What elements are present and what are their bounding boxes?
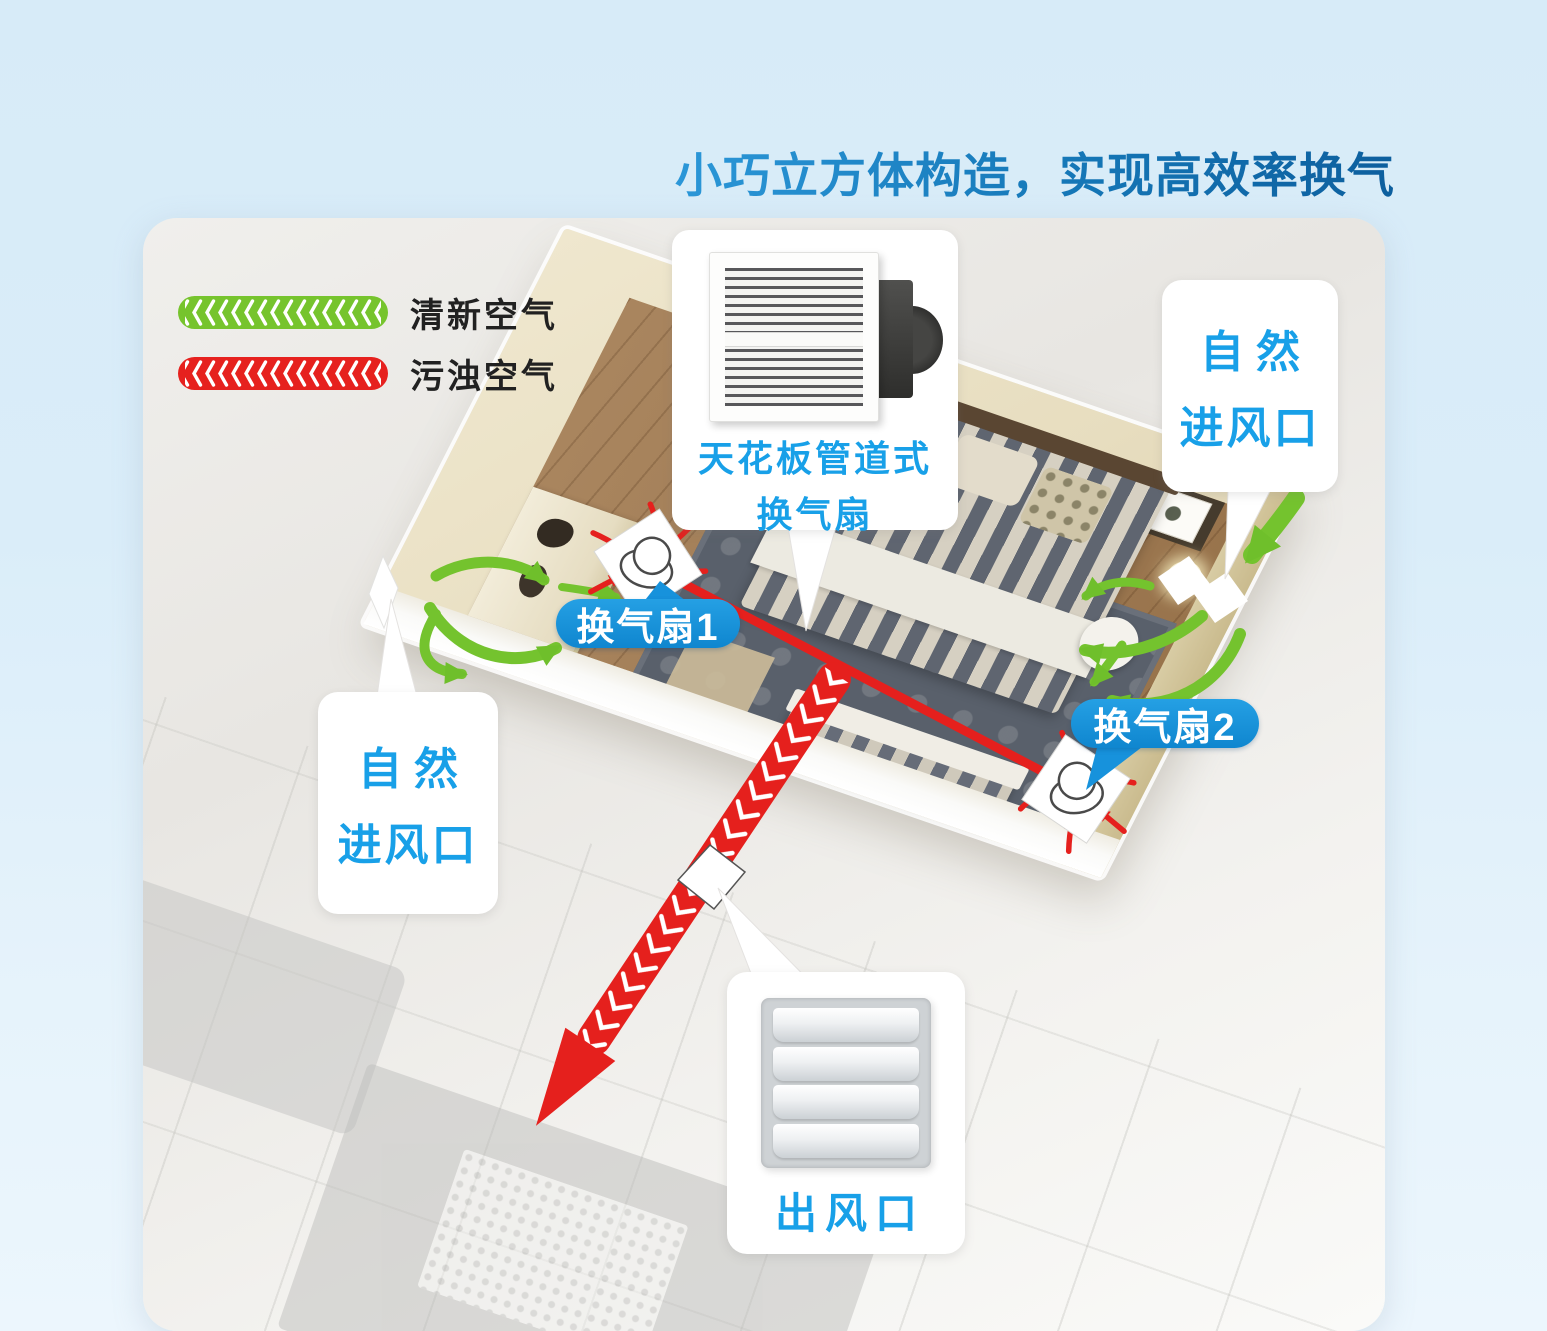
wardrobe-shadow bbox=[513, 561, 553, 600]
louver-vent-product-image bbox=[761, 998, 931, 1168]
fan2-label-pill: 换气扇2 bbox=[1071, 699, 1259, 748]
callout-natural-inlet-right: 自然 进风口 bbox=[1162, 280, 1338, 492]
louver-slat-icon bbox=[773, 1008, 919, 1042]
louver-slat-icon bbox=[773, 1124, 919, 1158]
inlet-left-label-line2: 进风口 bbox=[338, 809, 479, 873]
legend-fresh-air: 清新空气 bbox=[178, 288, 558, 337]
cushion bbox=[1018, 466, 1115, 545]
legend-dirty-label: 污浊空气 bbox=[410, 349, 558, 398]
fan-grille-band bbox=[725, 332, 863, 347]
dirty-air-arrow-icon bbox=[178, 357, 388, 390]
louver-slat-icon bbox=[773, 1085, 919, 1119]
infographic-canvas: 小巧立方体构造，实现高效率换气 清新空气 污浊空气 天花板管道式 换气扇 自然 bbox=[0, 0, 1547, 1331]
table-panel bbox=[417, 1149, 689, 1331]
legend-dirty-air: 污浊空气 bbox=[178, 349, 558, 398]
ceiling-fan-label-line1: 天花板管道式 bbox=[698, 430, 932, 482]
inlet-right-label-line1: 自然 bbox=[1188, 316, 1312, 380]
fresh-air-arrow-icon bbox=[178, 296, 388, 329]
wardrobe-shadow bbox=[532, 514, 578, 552]
page-title: 小巧立方体构造，实现高效率换气 bbox=[675, 137, 1395, 206]
inlet-left-label-line1: 自然 bbox=[346, 733, 470, 797]
fan1-label-pill: 换气扇1 bbox=[556, 599, 740, 648]
ceiling-fan-product-image bbox=[691, 250, 939, 428]
louver-slat-icon bbox=[773, 1047, 919, 1081]
callout-natural-inlet-left: 自然 进风口 bbox=[318, 692, 498, 914]
legend-fresh-label: 清新空气 bbox=[410, 288, 558, 337]
callout-ceiling-fan: 天花板管道式 换气扇 bbox=[672, 230, 958, 530]
outlet-label: 出风口 bbox=[767, 1180, 925, 1241]
ceiling-fan-label-line2: 换气扇 bbox=[756, 486, 873, 538]
callout-outlet: 出风口 bbox=[727, 972, 965, 1254]
fan-grille-icon bbox=[709, 252, 879, 422]
inlet-right-label-line2: 进风口 bbox=[1180, 392, 1321, 456]
